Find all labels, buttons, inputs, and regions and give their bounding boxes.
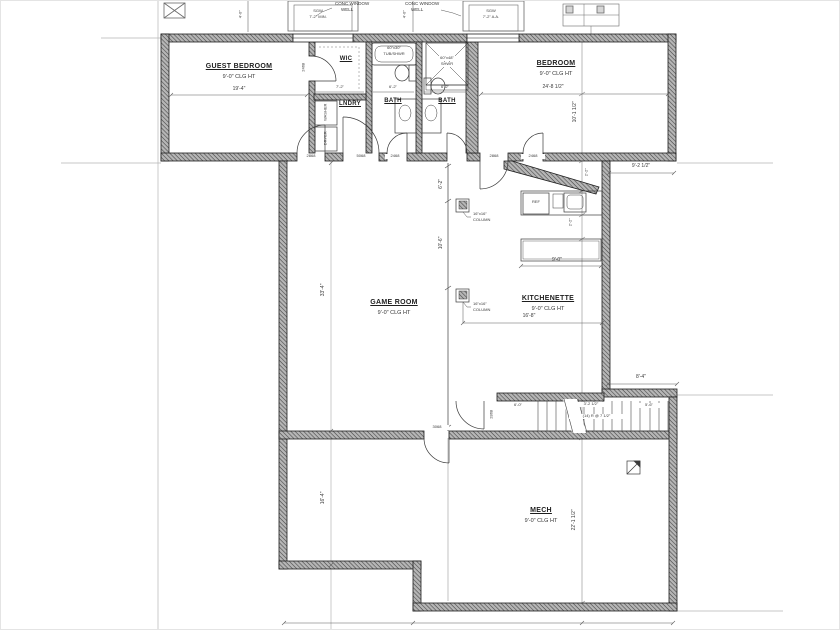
dim-beam-upper: 6'-2" [439, 164, 445, 204]
dim-stair-offset: 8'-4" [611, 375, 671, 381]
shower-size-label: 60"x48" [432, 56, 462, 61]
room-clg-game-room: 9'-0" CLG HT [334, 310, 454, 316]
room-clg-kitchenette: 9'-0" CLG HT [488, 306, 608, 312]
sgw2-height: 7'-2" A.A. [471, 15, 511, 20]
dim-island: 9'-0" [527, 258, 587, 264]
room-clg-mech: 9'-0" CLG HT [481, 518, 601, 524]
column [456, 199, 469, 212]
column [456, 289, 469, 302]
door-label-bedroom: 2468 [521, 154, 545, 159]
column1-size-label: 16"x16" [473, 212, 503, 217]
sgw2-label: SGW [471, 9, 511, 14]
walls [161, 34, 677, 611]
room-label-mech: MECH [481, 507, 601, 515]
room-label-kitchenette: KITCHENETTE [488, 295, 608, 303]
door-label-hall: 2868 [482, 154, 506, 159]
well-note2-line2: WELL [411, 7, 423, 12]
room-label-lndry: LNDRY [325, 101, 375, 108]
fridge-label: REF [523, 200, 549, 205]
toilet [395, 65, 416, 81]
dim-bedroom-depth: 10'-1 1/2" [573, 92, 579, 132]
dim-beam-mid: 10'-6" [439, 223, 445, 263]
door-label-guest: 2868 [299, 154, 323, 159]
floor-plan: GUEST BEDROOM 9'-0" CLG HT WIC LNDRY BAT… [0, 0, 840, 630]
dim-well2-offset: 4'-0" [403, 2, 408, 26]
floor-symbol [627, 461, 640, 474]
room-label-bath1: BATH [373, 98, 413, 105]
stair-dim2: 3'-2 1/2" [573, 402, 609, 407]
room-clg-guest-bedroom: 9'-0" CLG HT [179, 74, 299, 80]
sgw1-height: 7'-2" MIN. [298, 15, 338, 20]
dim-counter1: 2'-2" [585, 160, 590, 184]
dim-well1-offset: 4'-0" [239, 2, 244, 26]
door-label-stair: 2868 [490, 404, 495, 424]
door-label-bath1: 2468 [385, 154, 405, 159]
room-label-bedroom: BEDROOM [496, 60, 616, 68]
dim-guest-width: 19'-4" [199, 87, 279, 93]
tub-label: TUB/SHWR [374, 52, 414, 57]
dim-wic-width: 7'-2" [320, 85, 360, 90]
room-label-game-room: GAME ROOM [334, 299, 454, 307]
column2-size-label: 16"x16" [473, 302, 503, 307]
door-label-mech: 3068 [425, 425, 449, 430]
dim-game-height: 33'-4" [321, 270, 327, 310]
sgw1-label: SGW [298, 9, 338, 14]
beam-line [445, 163, 451, 601]
room-label-guest-bedroom: GUEST BEDROOM [179, 63, 299, 71]
dim-mech-left: 16'-4" [321, 478, 327, 518]
stair-riser-note: (14) R @ 7 1/2" [569, 414, 624, 419]
dim-bath1-width: 6'-2" [373, 85, 413, 90]
dim-kitchenette-offset: 9'-2 1/2" [611, 164, 671, 170]
well-note1-line2: WELL [341, 7, 353, 12]
stair-dim3: 5'-6" [635, 403, 663, 408]
dim-bedroom-width: 24'-8 1/2" [513, 85, 593, 91]
door-label-wic: 2468 [302, 57, 307, 77]
room-label-wic: WIC [326, 56, 366, 63]
room-clg-bedroom: 9'-0" CLG HT [496, 71, 616, 77]
dim-kitchen-width: 16'-8" [499, 314, 559, 320]
well-note2-line1: CONC WINDOW [405, 1, 439, 6]
door-label-laundry: 5068 [349, 154, 373, 159]
dim-mech-depth: 22'-1 1/2" [572, 500, 578, 540]
window-wells [164, 1, 619, 34]
dim-bath2-width: 6'-2" [425, 85, 465, 90]
dryer-label: DRYER [324, 123, 329, 153]
shower-label: SHWR [432, 62, 462, 67]
column1-label: COLUMN [473, 218, 503, 223]
column2-label: COLUMN [473, 308, 503, 313]
well-note1-line1: CONC WINDOW [335, 1, 369, 6]
tub-size-label: 60"x30" [374, 46, 414, 51]
stair-dim1: 6'-0" [504, 403, 532, 408]
dim-counter2: 2'-2" [569, 210, 574, 234]
room-label-bath2: BATH [427, 98, 467, 105]
